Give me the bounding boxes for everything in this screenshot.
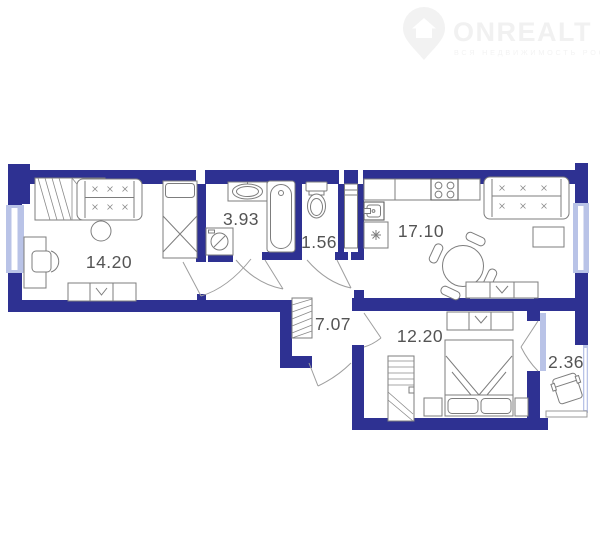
kitchen-counter: [364, 179, 480, 200]
watermark-logo: ONREALT ВСЯ НЕДВИЖИМОСТЬ РОССИИ: [403, 7, 600, 60]
double-bed: [445, 340, 513, 416]
brand-name: ONREALT: [453, 17, 592, 47]
single-bed: [163, 181, 197, 258]
shaft-cabinet: [345, 184, 358, 248]
stove: [431, 179, 458, 200]
bedroom-dresser: [447, 312, 513, 330]
nightstand: [515, 398, 528, 416]
kitchen-dresser: [466, 282, 538, 299]
kitchen-sofa: [484, 177, 569, 219]
balcony-door: [521, 321, 538, 371]
balcony-chair: [550, 372, 586, 406]
hallway-wardrobe: [292, 298, 312, 338]
entry-door: [309, 363, 351, 386]
brand-tagline: ВСЯ НЕДВИЖИМОСТЬ РОССИИ: [454, 48, 600, 57]
bathroom-sink: [228, 182, 267, 202]
bathroom-door: [236, 260, 283, 289]
room-label-wc: 1.56: [301, 232, 337, 252]
room-label-living-room: 14.20: [86, 252, 132, 272]
dresser: [68, 283, 136, 301]
water-heater: [364, 222, 388, 248]
window-kitchen: [573, 203, 589, 273]
room-label-kitchen: 17.10: [398, 221, 444, 241]
room-label-bathroom: 3.93: [223, 209, 259, 229]
desk-chair: [32, 251, 59, 272]
toilet: [306, 182, 327, 218]
bathtub: [267, 181, 295, 252]
washing-machine: [206, 228, 233, 255]
room-label-bedroom: 12.20: [397, 326, 443, 346]
sofa: [77, 179, 142, 220]
round-table: [91, 221, 111, 241]
living-room-door: [183, 259, 251, 296]
side-table: [533, 227, 564, 247]
nightstand: [424, 398, 442, 416]
bedroom-door: [364, 313, 381, 347]
wc-door: [307, 260, 351, 288]
room-label-balcony: 2.36: [548, 352, 584, 372]
bedroom-wardrobe: [388, 356, 414, 421]
window-living-room: [6, 205, 24, 273]
room-label-hallway: 7.07: [315, 314, 351, 334]
floorplan-svg: ONREALT ВСЯ НЕДВИЖИМОСТЬ РОССИИ: [0, 0, 600, 550]
floorplan-page: ONREALT ВСЯ НЕДВИЖИМОСТЬ РОССИИ: [0, 0, 600, 550]
kitchen-sink: [364, 202, 384, 220]
